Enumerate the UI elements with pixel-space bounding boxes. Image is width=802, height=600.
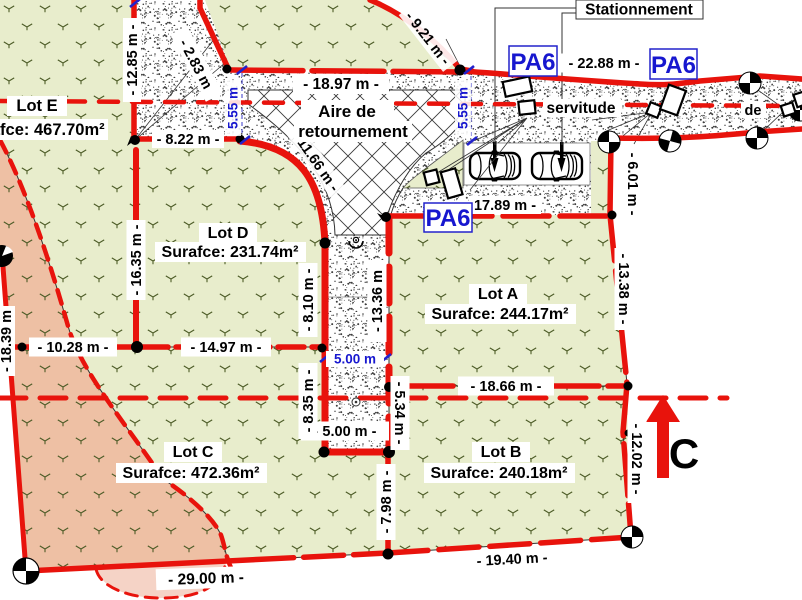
svg-text:Surafce: 467.70m²: Surafce: 467.70m²	[0, 121, 105, 139]
svg-text:Surafce: 231.74m²: Surafce: 231.74m²	[162, 244, 299, 261]
svg-text:Stationnement: Stationnement	[585, 2, 693, 19]
svg-text:- 12.02 m -: - 12.02 m -	[628, 424, 644, 495]
svg-text:PA6: PA6	[426, 205, 471, 232]
svg-text:- 18.97 m -: - 18.97 m -	[303, 76, 379, 93]
svg-text:- 29.00 m -: - 29.00 m -	[168, 569, 244, 589]
svg-text:- 16.35 m -: - 16.35 m -	[129, 224, 145, 295]
svg-text:Surafce: 244.17m²: Surafce: 244.17m²	[432, 306, 569, 323]
svg-text:Lot A: Lot A	[478, 286, 519, 303]
svg-text:- 14.97 m -: - 14.97 m -	[191, 340, 262, 356]
svg-text:de: de	[745, 103, 762, 119]
svg-text:servitude: servitude	[547, 100, 616, 117]
svg-text:- 8.35 m -: - 8.35 m -	[301, 369, 317, 432]
svg-text:5.55 m: 5.55 m	[456, 87, 471, 129]
svg-text:- 8.22 m -: - 8.22 m -	[157, 132, 220, 148]
svg-text:Surafce: 472.36m²: Surafce: 472.36m²	[123, 465, 260, 482]
svg-text:Lot E: Lot E	[16, 97, 57, 115]
svg-text:- 18.66 m -: - 18.66 m -	[471, 379, 542, 395]
svg-text:- 7.98 m -: - 7.98 m -	[379, 470, 395, 533]
svg-text:retournement: retournement	[298, 122, 408, 141]
svg-text:Aire de: Aire de	[318, 102, 376, 121]
svg-text:- 18.39 m: - 18.39 m	[0, 310, 15, 372]
svg-text:- 8.10 m -: - 8.10 m -	[301, 268, 317, 331]
svg-text:Lot C: Lot C	[173, 444, 214, 461]
svg-text:- 13.38 m -: - 13.38 m -	[615, 254, 631, 325]
svg-text:C: C	[669, 430, 699, 477]
svg-text:- 22.88 m -: - 22.88 m -	[569, 56, 640, 72]
svg-text:Lot D: Lot D	[208, 225, 249, 242]
svg-text:Surafce: 240.18m²: Surafce: 240.18m²	[431, 465, 568, 482]
svg-text:- 13.36 m: - 13.36 m	[370, 270, 386, 332]
svg-text:PA6: PA6	[511, 49, 556, 76]
svg-text:5.55 m: 5.55 m	[226, 87, 241, 129]
svg-text:5.00 m: 5.00 m	[334, 352, 376, 367]
svg-text:17.89 m -: 17.89 m -	[474, 198, 536, 214]
svg-text:PA6: PA6	[651, 52, 696, 79]
svg-text:- 5.34 m -: - 5.34 m -	[391, 382, 407, 445]
svg-text:Lot B: Lot B	[481, 444, 522, 461]
svg-text:- 5.00 m -: - 5.00 m -	[314, 424, 377, 440]
svg-text:- 12.85 m -: - 12.85 m -	[125, 24, 141, 95]
svg-text:- 10.28 m -: - 10.28 m -	[38, 340, 109, 356]
svg-text:- 6.01 m -: - 6.01 m -	[624, 153, 640, 216]
